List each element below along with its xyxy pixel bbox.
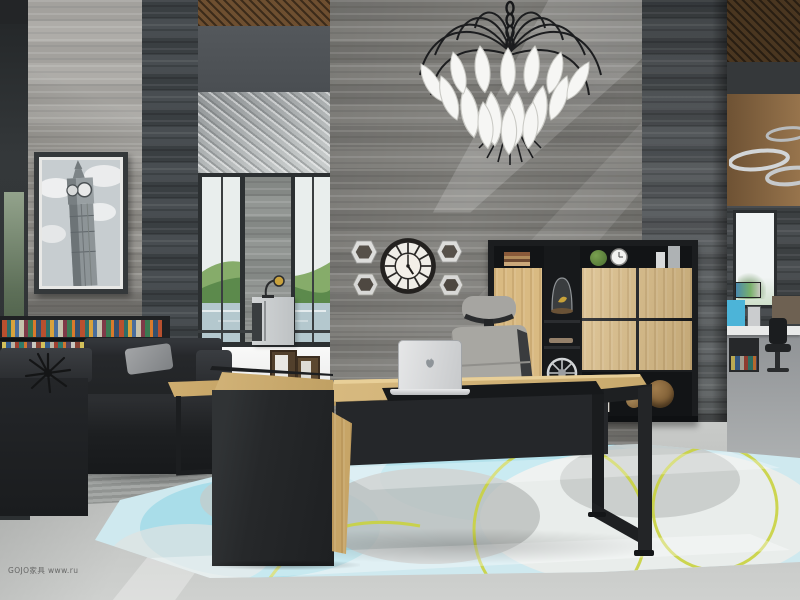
far-blue-panel <box>727 300 745 326</box>
cabinet-door-line <box>264 301 266 341</box>
macbook-base <box>390 389 470 395</box>
decor-round-clock <box>610 248 628 266</box>
task-chair-back <box>769 318 787 344</box>
task-chair <box>765 318 791 374</box>
table-lamp <box>258 272 290 298</box>
vase <box>656 252 665 268</box>
hex-decor-icon <box>350 240 378 264</box>
window-mullion <box>221 175 223 345</box>
gray-beam <box>198 26 332 92</box>
decor-tray <box>549 338 573 343</box>
return-body-black <box>212 390 334 566</box>
window-mullion <box>312 175 314 345</box>
watermark: GOJO家具 www.ru <box>8 565 78 576</box>
left-window-glass <box>4 192 24 334</box>
desk-side-wood-panel <box>332 412 352 554</box>
pedestal-books <box>731 356 757 370</box>
door-shading <box>582 268 692 370</box>
decor-cloche-bird <box>549 272 575 316</box>
window-head <box>198 173 332 177</box>
low-cabinet <box>252 297 294 345</box>
ring-light <box>729 116 800 196</box>
photo-frame-inner <box>301 361 311 379</box>
cabinet-shelf-line <box>544 346 580 349</box>
task-chair-seat <box>765 344 791 352</box>
cabinet-wood-doors-grid <box>582 268 692 370</box>
vase <box>668 246 680 268</box>
bigben-photo <box>42 160 120 286</box>
hex-decor-icon <box>436 240 463 263</box>
leaf-chandelier <box>405 0 615 168</box>
wood-slat-band-top <box>198 0 332 26</box>
bigben-frame <box>34 152 128 294</box>
cabinet-door-dark <box>252 303 262 341</box>
apple-logo-icon <box>425 358 435 369</box>
bookshelf-books-row <box>2 320 162 337</box>
wall-clock <box>379 237 437 295</box>
office-interior-photo: GOJO家具 www.ru <box>0 0 800 600</box>
wood-slat-ceiling-dark <box>727 0 800 62</box>
hex-decor-icon <box>352 273 379 296</box>
photo-frame-inner <box>275 355 288 379</box>
far-wall-art <box>735 282 761 298</box>
right-wall-corner-edge <box>712 0 727 422</box>
desk-modesty-panel <box>334 390 610 466</box>
desk-return-unit <box>210 346 355 568</box>
return-floor-shadow <box>210 560 360 570</box>
starburst-ornament <box>24 352 72 394</box>
sofa-body <box>0 378 88 516</box>
task-chair-feet <box>767 368 789 372</box>
far-monitor <box>747 306 761 328</box>
macbook <box>390 340 470 398</box>
ceiling-beam <box>727 62 800 94</box>
mobile-pedestal <box>729 338 759 372</box>
white-slat-ceiling-sheen <box>198 92 332 176</box>
decor-books <box>504 252 530 266</box>
decor-vases <box>656 246 682 268</box>
window-mullion <box>198 175 202 345</box>
decor-moss-ball <box>590 250 607 266</box>
cabinet-shelf-line <box>544 320 580 323</box>
desk-loop-leg <box>588 382 656 560</box>
